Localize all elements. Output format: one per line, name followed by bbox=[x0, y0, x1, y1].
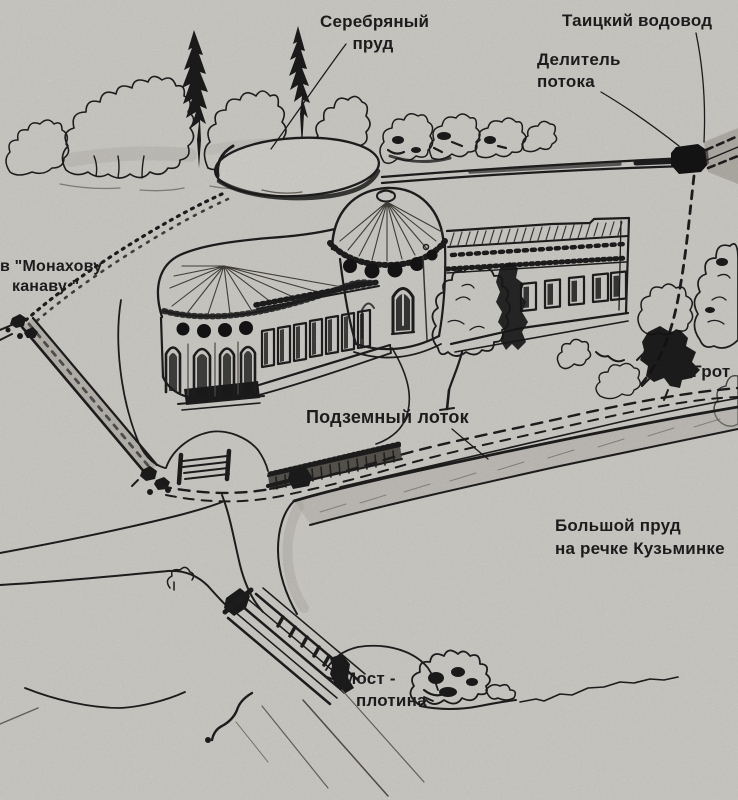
label-taitsky-aqueduct: Таицкий водовод bbox=[562, 10, 712, 32]
label-silver-pond: Серебряный пруд bbox=[320, 11, 426, 55]
label-underground-conduit-text: Подземный лоток bbox=[306, 406, 469, 428]
label-big-pond-line1: Большой пруд bbox=[555, 514, 725, 537]
label-flow-divider-line1: Делитель bbox=[537, 49, 621, 71]
label-monks-ditch-line1: в "Монахову bbox=[0, 257, 102, 277]
label-grotto: Грот bbox=[692, 361, 730, 383]
label-bridge-dam: Мост - плотина bbox=[330, 668, 427, 712]
label-big-pond-line2: на речке Кузьминке bbox=[555, 537, 725, 560]
label-underground-conduit: Подземный лоток bbox=[306, 406, 469, 428]
label-grotto-text: Грот bbox=[692, 361, 730, 383]
label-flow-divider: Делитель потока bbox=[537, 49, 621, 93]
scanned-sketch-page: Серебряный пруд Таицкий водовод Делитель… bbox=[0, 0, 738, 800]
label-bridge-dam-line2: плотина bbox=[330, 690, 427, 712]
label-silver-pond-line2: пруд bbox=[320, 33, 426, 55]
label-monks-ditch-line2: канаву " bbox=[0, 277, 102, 297]
label-bridge-dam-line1: Мост - bbox=[330, 668, 427, 690]
label-big-pond: Большой пруд на речке Кузьминке bbox=[555, 514, 725, 560]
label-monks-ditch: в "Монахову канаву " bbox=[0, 257, 102, 297]
label-taitsky-aqueduct-text: Таицкий водовод bbox=[562, 10, 712, 32]
label-silver-pond-line1: Серебряный bbox=[320, 11, 426, 33]
label-flow-divider-line2: потока bbox=[537, 71, 621, 93]
